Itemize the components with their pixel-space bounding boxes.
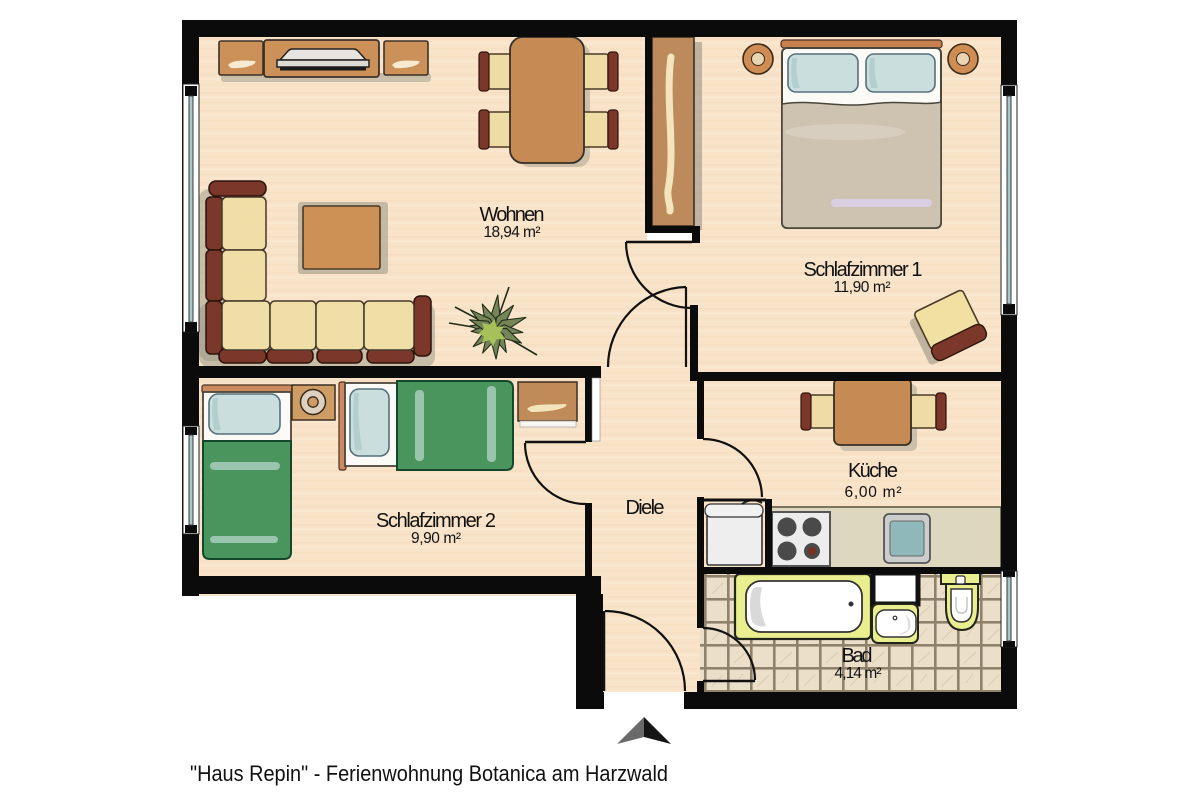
svg-text:Wohnen: Wohnen	[480, 204, 545, 226]
svg-text:Küche: Küche	[848, 460, 898, 482]
svg-text:"Haus Repin" - Ferienwohnung B: "Haus Repin" - Ferienwohnung Botanica am…	[190, 761, 668, 786]
svg-text:Bad: Bad	[842, 645, 873, 667]
svg-text:18,94 m²: 18,94 m²	[484, 224, 541, 241]
svg-text:11,90 m²: 11,90 m²	[834, 279, 891, 296]
svg-text:Schlafzimmer 2: Schlafzimmer 2	[376, 510, 496, 532]
svg-text:9,90 m²: 9,90 m²	[411, 530, 461, 547]
svg-text:Diele: Diele	[626, 497, 665, 519]
svg-text:6,00 m²: 6,00 m²	[845, 484, 902, 501]
svg-text:4,14 m²: 4,14 m²	[835, 665, 882, 682]
svg-text:Schlafzimmer 1: Schlafzimmer 1	[804, 259, 923, 281]
